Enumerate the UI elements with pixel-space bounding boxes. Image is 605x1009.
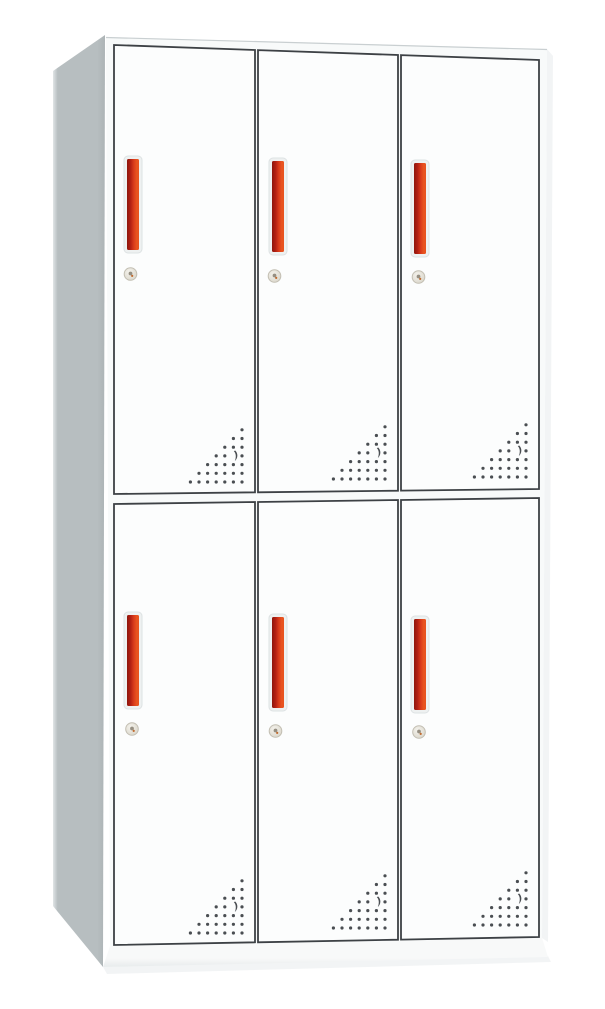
- vent-dot: [524, 915, 527, 918]
- vent-dot: [375, 926, 378, 929]
- vent-dot: [358, 900, 361, 903]
- locker-door: [401, 498, 539, 940]
- vent-dot: [232, 931, 235, 934]
- vent-dot: [358, 451, 361, 454]
- vent-dot: [507, 449, 510, 452]
- door-bottom-left: [114, 502, 255, 945]
- vent-dot: [223, 914, 226, 917]
- vent-dot: [499, 923, 502, 926]
- vent-dot: [206, 923, 209, 926]
- vent-dot: [366, 926, 369, 929]
- vent-dot: [240, 437, 243, 440]
- vent-dot: [223, 446, 226, 449]
- door-lock: [269, 725, 282, 738]
- vent-dot: [358, 918, 361, 921]
- vent-dot: [340, 926, 343, 929]
- vent-dot: [349, 477, 352, 480]
- lock-accent: [276, 732, 278, 734]
- vent-dot: [223, 897, 226, 900]
- vent-dot: [240, 446, 243, 449]
- vent-dot: [516, 923, 519, 926]
- vent-dot: [358, 909, 361, 912]
- vent-dot: [232, 463, 235, 466]
- vent-dot: [524, 475, 527, 478]
- vent-dot: [490, 475, 493, 478]
- vent-dot: [223, 931, 226, 934]
- door-lock: [124, 268, 137, 281]
- vent-dot: [524, 906, 527, 909]
- lock-accent: [275, 277, 277, 279]
- vent-dot: [215, 905, 218, 908]
- door-bottom-right: [401, 498, 539, 940]
- vent-dot: [215, 923, 218, 926]
- vent-dot: [197, 472, 200, 475]
- vent-dot: [499, 458, 502, 461]
- vent-dot: [383, 443, 386, 446]
- door-handle: [127, 159, 139, 250]
- vent-dot: [499, 475, 502, 478]
- vent-dot: [524, 897, 527, 900]
- vent-dot: [383, 909, 386, 912]
- door-handle: [127, 615, 139, 706]
- vent-dot: [383, 918, 386, 921]
- vent-dot: [507, 897, 510, 900]
- vent-dot: [524, 880, 527, 883]
- vent-dot: [507, 923, 510, 926]
- vent-dot: [481, 923, 484, 926]
- vent-dot: [507, 915, 510, 918]
- vent-dot: [332, 926, 335, 929]
- vent-dot: [383, 477, 386, 480]
- vent-dot: [206, 480, 209, 483]
- vent-dot: [240, 879, 243, 882]
- vent-dot: [232, 446, 235, 449]
- door-top-right: [401, 55, 539, 491]
- vent-dot: [490, 458, 493, 461]
- vent-dot: [507, 889, 510, 892]
- vent-dot: [490, 906, 493, 909]
- vent-dot: [340, 469, 343, 472]
- vent-dot: [349, 469, 352, 472]
- door-lock: [126, 723, 139, 736]
- lock-accent: [131, 275, 133, 277]
- vent-dot: [240, 463, 243, 466]
- vent-dot: [383, 469, 386, 472]
- vent-dot: [524, 458, 527, 461]
- door-top-middle: [258, 50, 398, 492]
- vent-dot: [223, 463, 226, 466]
- door-top-left: [114, 45, 255, 494]
- vent-dot: [349, 460, 352, 463]
- vent-dot: [524, 423, 527, 426]
- vent-dot: [366, 460, 369, 463]
- locker-door: [258, 500, 398, 942]
- vent-dot: [240, 897, 243, 900]
- vent-dot: [189, 480, 192, 483]
- vent-dot: [366, 900, 369, 903]
- vent-dot: [240, 931, 243, 934]
- vent-dot: [223, 923, 226, 926]
- vent-dot: [206, 931, 209, 934]
- vent-dot: [473, 923, 476, 926]
- vent-dot: [499, 915, 502, 918]
- vent-dot: [383, 892, 386, 895]
- vent-dot: [481, 475, 484, 478]
- lock-keyhole: [417, 275, 421, 279]
- vent-dot: [383, 900, 386, 903]
- vent-dot: [375, 918, 378, 921]
- vent-dot: [383, 874, 386, 877]
- vent-dot: [524, 871, 527, 874]
- vent-dot: [349, 909, 352, 912]
- vent-dot: [358, 460, 361, 463]
- vent-dot: [375, 883, 378, 886]
- vent-dot: [507, 458, 510, 461]
- vent-dot: [223, 454, 226, 457]
- product-photo: [0, 0, 605, 1009]
- vent-dot: [240, 454, 243, 457]
- vent-dot: [358, 477, 361, 480]
- vent-dot: [240, 914, 243, 917]
- door-lock: [412, 271, 425, 284]
- vent-dot: [375, 909, 378, 912]
- vent-dot: [340, 477, 343, 480]
- vent-dot: [516, 432, 519, 435]
- vent-dot: [524, 441, 527, 444]
- vent-dot: [240, 480, 243, 483]
- lock-keyhole: [273, 274, 277, 278]
- vent-dot: [516, 906, 519, 909]
- vent-dot: [240, 888, 243, 891]
- vent-dot: [215, 463, 218, 466]
- lock-accent: [420, 733, 422, 735]
- vent-dot: [366, 443, 369, 446]
- vent-dot: [524, 467, 527, 470]
- vent-dot: [516, 467, 519, 470]
- vent-dot: [481, 915, 484, 918]
- vent-dot: [507, 467, 510, 470]
- vent-dot: [516, 475, 519, 478]
- vent-dot: [332, 477, 335, 480]
- vent-dot: [375, 443, 378, 446]
- vent-dot: [473, 475, 476, 478]
- vent-dot: [524, 449, 527, 452]
- vent-dot: [240, 472, 243, 475]
- vent-dot: [240, 905, 243, 908]
- vent-dot: [375, 469, 378, 472]
- vent-dot: [490, 915, 493, 918]
- door-handle: [272, 161, 284, 252]
- vent-dot: [206, 472, 209, 475]
- vent-dot: [366, 477, 369, 480]
- vent-dot: [516, 441, 519, 444]
- vent-dot: [516, 880, 519, 883]
- vent-dot: [358, 469, 361, 472]
- vent-dot: [524, 432, 527, 435]
- vent-dot: [366, 909, 369, 912]
- vent-dot: [232, 923, 235, 926]
- door-lock: [413, 726, 426, 739]
- vent-dot: [383, 451, 386, 454]
- vent-dot: [366, 469, 369, 472]
- vent-dot: [215, 454, 218, 457]
- vent-dot: [215, 914, 218, 917]
- vent-dot: [375, 892, 378, 895]
- vent-dot: [516, 915, 519, 918]
- vent-dot: [223, 480, 226, 483]
- vent-dot: [499, 897, 502, 900]
- vent-dot: [189, 931, 192, 934]
- vent-dot: [223, 472, 226, 475]
- vent-dot: [349, 926, 352, 929]
- vent-dot: [232, 914, 235, 917]
- vent-dot: [507, 906, 510, 909]
- vent-dot: [516, 458, 519, 461]
- lock-accent: [133, 730, 135, 732]
- vent-dot: [524, 889, 527, 892]
- lock-accent: [419, 278, 421, 280]
- vent-dot: [507, 475, 510, 478]
- vent-dot: [383, 425, 386, 428]
- vent-dot: [490, 923, 493, 926]
- vent-dot: [240, 428, 243, 431]
- vent-dot: [499, 449, 502, 452]
- vent-dot: [366, 918, 369, 921]
- vent-dot: [516, 889, 519, 892]
- vent-dot: [197, 923, 200, 926]
- vent-dot: [197, 480, 200, 483]
- vent-dot: [232, 897, 235, 900]
- door-handle: [414, 163, 426, 254]
- vent-dot: [232, 480, 235, 483]
- vent-dot: [197, 931, 200, 934]
- vent-dot: [206, 914, 209, 917]
- vent-dot: [232, 888, 235, 891]
- vent-dot: [499, 906, 502, 909]
- vent-dot: [507, 441, 510, 444]
- vent-dot: [375, 434, 378, 437]
- door-lock: [268, 270, 281, 283]
- lock-keyhole: [417, 730, 421, 734]
- vent-dot: [223, 905, 226, 908]
- vent-dot: [358, 926, 361, 929]
- vent-dot: [215, 931, 218, 934]
- vent-dot: [490, 467, 493, 470]
- vent-dot: [383, 460, 386, 463]
- vent-dot: [524, 923, 527, 926]
- vent-dot: [383, 926, 386, 929]
- vent-dot: [375, 460, 378, 463]
- door-bottom-middle: [258, 500, 398, 942]
- lock-keyhole: [274, 729, 278, 733]
- vent-dot: [349, 918, 352, 921]
- lock-keyhole: [130, 727, 134, 731]
- vent-dot: [240, 923, 243, 926]
- side-panel: [53, 35, 105, 967]
- locker-cabinet: [0, 0, 605, 1009]
- vent-dot: [383, 434, 386, 437]
- vent-dot: [206, 463, 209, 466]
- vent-dot: [215, 472, 218, 475]
- vent-dot: [232, 472, 235, 475]
- vent-dot: [340, 918, 343, 921]
- vent-dot: [215, 480, 218, 483]
- vent-dot: [481, 467, 484, 470]
- vent-dot: [366, 892, 369, 895]
- door-handle: [414, 619, 426, 710]
- vent-dot: [375, 477, 378, 480]
- lock-keyhole: [129, 272, 133, 276]
- vent-dot: [232, 437, 235, 440]
- vent-dot: [383, 883, 386, 886]
- vent-dot: [499, 467, 502, 470]
- vent-dot: [366, 451, 369, 454]
- door-handle: [272, 617, 284, 708]
